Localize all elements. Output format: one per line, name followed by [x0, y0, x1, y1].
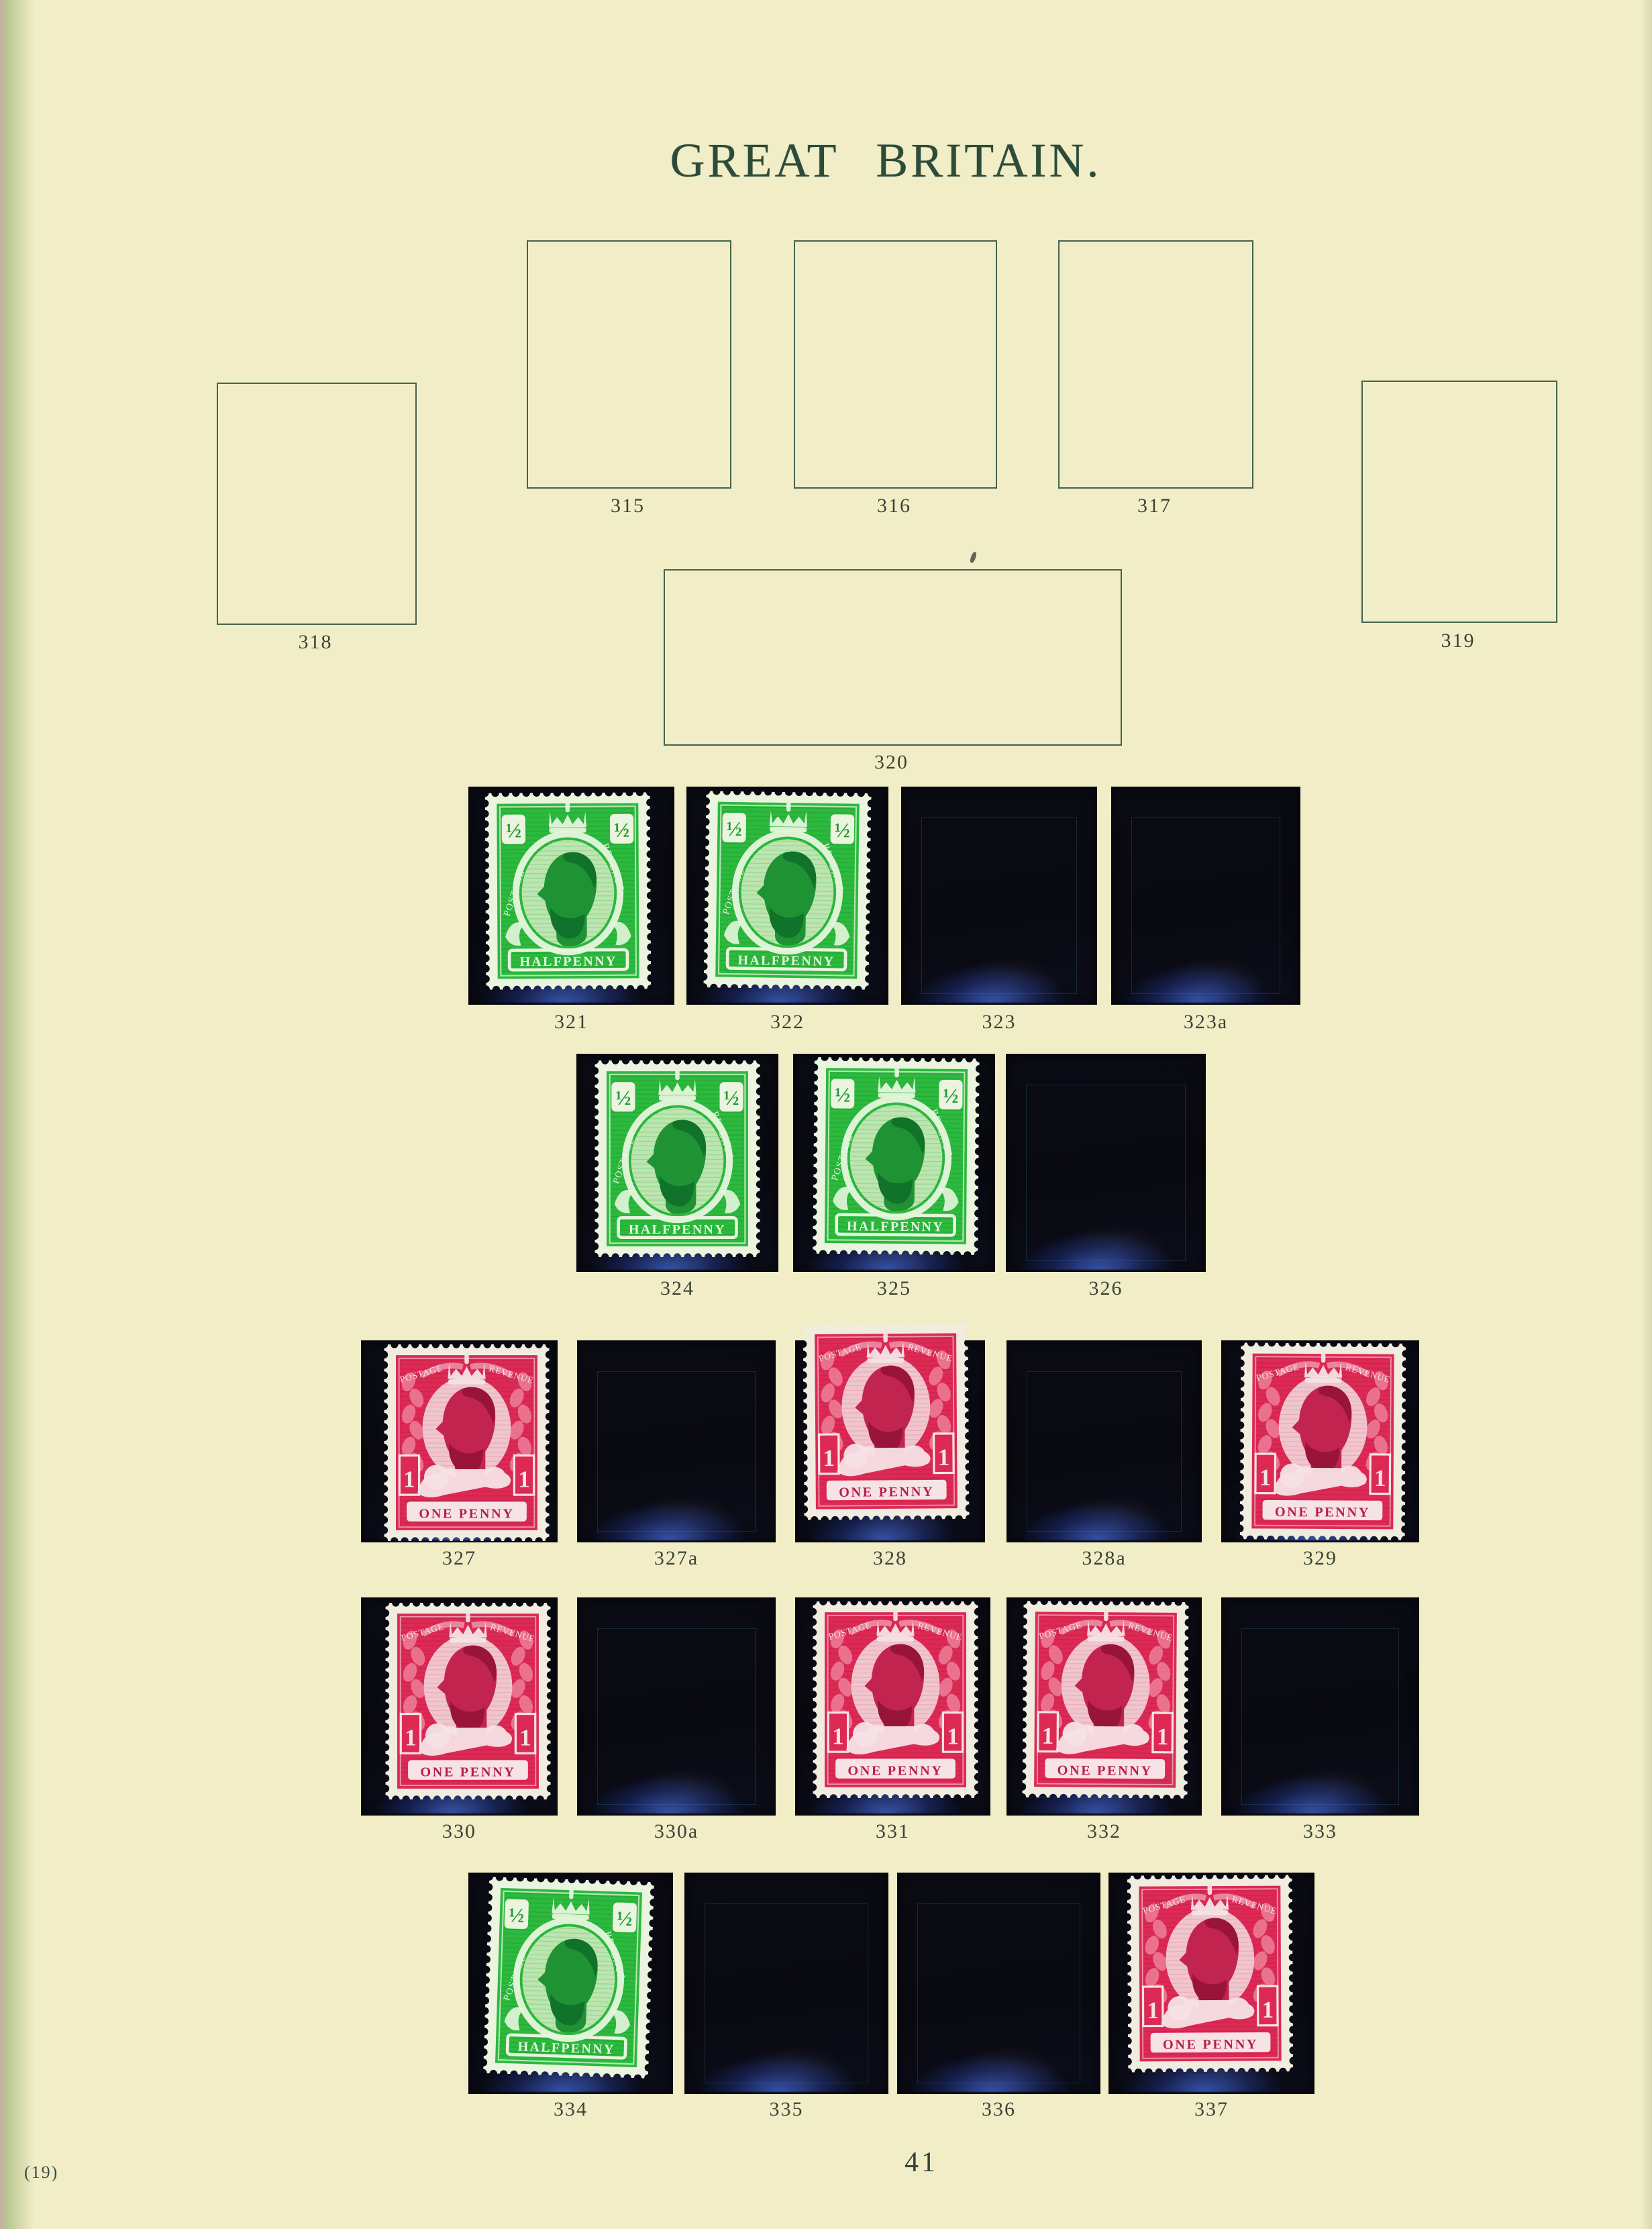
page-left-edge-shadow	[0, 0, 35, 2229]
mount-light-glow	[901, 2048, 1096, 2092]
stamp-one-penny-red-332	[1022, 1601, 1189, 1799]
catalogue-number-322: 322	[770, 1011, 805, 1034]
mount-light-glow	[1115, 958, 1296, 1003]
catalogue-number-328a: 328a	[1082, 1547, 1126, 1570]
outline-box-317	[1058, 240, 1253, 489]
stamp-mount-333	[1221, 1597, 1419, 1816]
mount-light-glow	[1010, 1226, 1202, 1270]
stamp-halfpenny-green-324	[595, 1060, 760, 1257]
catalogue-number-327a: 327a	[654, 1547, 699, 1570]
catalogue-number-319: 319	[1441, 630, 1476, 652]
catalogue-number-330a: 330a	[654, 1820, 699, 1843]
stamp-one-penny-red-337	[1127, 1875, 1294, 2072]
outline-box-318	[217, 383, 417, 625]
ink-speck	[969, 551, 977, 563]
stamp-mount-327a	[577, 1340, 776, 1542]
catalogue-number-324: 324	[660, 1277, 694, 1300]
catalogue-number-331: 331	[876, 1820, 910, 1843]
catalogue-number-334: 334	[554, 2098, 588, 2121]
stamp-mount-328a	[1006, 1340, 1202, 1542]
catalogue-number-318: 318	[299, 631, 333, 654]
outline-box-320	[664, 569, 1122, 746]
catalogue-number-316: 316	[877, 495, 911, 517]
catalogue-number-336: 336	[982, 2098, 1016, 2121]
page-right-edge-shadow	[1641, 0, 1652, 2229]
catalogue-number-337: 337	[1194, 2098, 1229, 2121]
catalogue-number-317: 317	[1137, 495, 1172, 517]
stamp-one-penny-red-331	[813, 1601, 978, 1798]
outline-box-319	[1361, 381, 1557, 623]
stamp-mount-323a	[1111, 787, 1300, 1005]
catalogue-number-323a: 323a	[1184, 1011, 1228, 1034]
stamp-mount-336	[897, 1873, 1100, 2094]
catalogue-number-320: 320	[874, 751, 909, 774]
mount-light-glow	[1225, 1769, 1415, 1814]
stamp-mount-323	[901, 787, 1097, 1005]
stamp-halfpenny-green-334	[482, 1877, 654, 2079]
stamp-halfpenny-green-321	[484, 792, 652, 989]
mount-light-glow	[688, 2048, 884, 2092]
mount-light-glow	[905, 958, 1093, 1003]
catalogue-number-328: 328	[873, 1547, 907, 1570]
stamp-one-penny-red-330	[385, 1603, 551, 1799]
stamp-one-penny-red-327	[384, 1344, 550, 1541]
page-number: 41	[905, 2146, 938, 2179]
catalogue-number-329: 329	[1303, 1547, 1337, 1570]
plate-footnote: (19)	[24, 2163, 58, 2183]
stamp-album-page: GREAT BRITAIN. 3153163173183193203213223…	[0, 0, 1652, 2229]
mount-light-glow	[1011, 1496, 1198, 1540]
catalogue-number-327: 327	[442, 1547, 476, 1570]
catalogue-number-335: 335	[770, 2098, 804, 2121]
catalogue-number-333: 333	[1303, 1820, 1337, 1843]
catalogue-number-321: 321	[554, 1011, 588, 1034]
stamp-mount-326	[1006, 1054, 1206, 1272]
catalogue-number-323: 323	[982, 1011, 1017, 1034]
catalogue-number-326: 326	[1089, 1277, 1123, 1300]
page-title: GREAT BRITAIN.	[670, 133, 1102, 189]
mount-light-glow	[581, 1496, 772, 1540]
stamp-halfpenny-green-325	[813, 1057, 980, 1255]
catalogue-number-315: 315	[611, 495, 645, 517]
outline-box-316	[794, 240, 997, 489]
catalogue-number-330: 330	[442, 1820, 476, 1843]
stamp-one-penny-red-329	[1239, 1342, 1406, 1540]
mount-light-glow	[581, 1769, 772, 1814]
stamp-mount-330a	[577, 1597, 776, 1816]
stamp-mount-335	[684, 1873, 888, 2094]
stamp-halfpenny-green-322	[703, 791, 872, 989]
outline-box-315	[527, 240, 731, 489]
stamp-one-penny-red-328	[803, 1322, 970, 1520]
catalogue-number-325: 325	[877, 1277, 911, 1300]
catalogue-number-332: 332	[1087, 1820, 1121, 1843]
